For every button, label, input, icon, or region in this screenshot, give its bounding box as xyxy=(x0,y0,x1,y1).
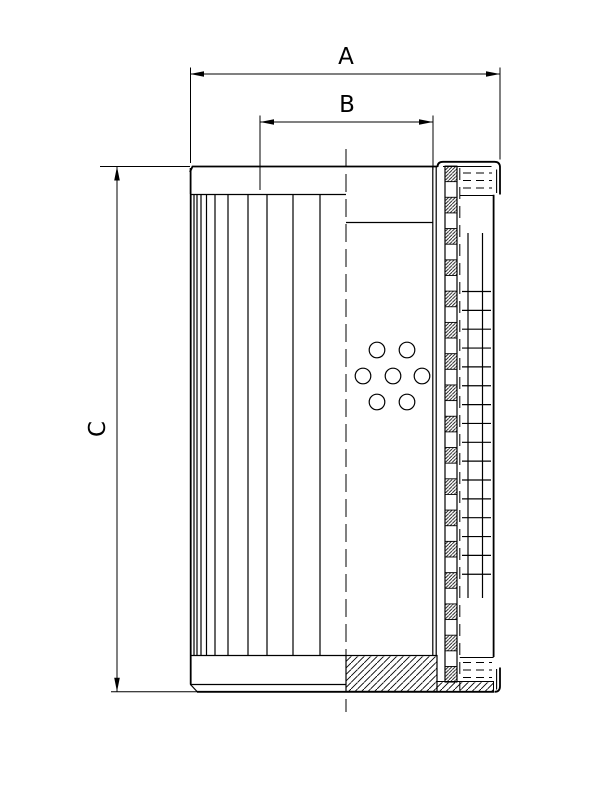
bypass-hole xyxy=(385,368,401,384)
core-tube-segment xyxy=(445,354,457,370)
shell-bottom-lip-outer xyxy=(495,668,501,692)
bypass-hole xyxy=(369,342,385,358)
drawing-page: A B C xyxy=(0,0,612,792)
core-tube-segment xyxy=(445,416,457,432)
core-tube-segment xyxy=(445,666,457,682)
dimension-arrowheads xyxy=(114,71,500,692)
dim-b-label: B xyxy=(339,92,355,118)
dimension-labels: A B C xyxy=(85,44,355,437)
core-tube-segment xyxy=(445,229,457,245)
core-tube-segment xyxy=(445,510,457,526)
arrow-c-bottom xyxy=(114,678,120,692)
arrow-b-left xyxy=(260,119,274,125)
dim-c-label: C xyxy=(85,421,111,437)
core-tube-segment xyxy=(445,541,457,557)
dim-a-label: A xyxy=(338,44,354,70)
filter-element-drawing: A B C xyxy=(0,0,612,792)
core-tube-segment xyxy=(445,260,457,276)
bottom-cap-section-hatch xyxy=(346,656,437,692)
bypass-hole-pattern xyxy=(355,342,430,410)
core-tube-segment xyxy=(445,322,457,338)
sectioned-parts xyxy=(346,656,494,692)
arrow-a-left xyxy=(190,71,204,77)
core-tube-segment xyxy=(445,448,457,464)
seal-thread-dashes xyxy=(463,173,492,678)
core-tube-segment xyxy=(445,635,457,651)
bypass-hole xyxy=(414,368,430,384)
pleat-lines xyxy=(194,195,320,655)
core-tube-segment xyxy=(445,385,457,401)
core-tube-segment xyxy=(445,604,457,620)
bypass-hole xyxy=(399,342,415,358)
bypass-hole xyxy=(399,394,415,410)
core-tube-segment xyxy=(445,573,457,589)
bottom-cap-chamfer xyxy=(191,685,198,692)
arrow-c-top xyxy=(114,167,120,181)
bypass-hole xyxy=(355,368,371,384)
arrow-b-right xyxy=(419,119,433,125)
arrow-a-right xyxy=(486,71,500,77)
shell-bottom-band-hatch xyxy=(437,682,494,692)
core-tube-segment xyxy=(445,291,457,307)
core-tube-segment xyxy=(445,197,457,213)
bypass-hole xyxy=(369,394,385,410)
dimension-lines xyxy=(100,68,500,692)
top-cap-top-edge xyxy=(190,167,438,173)
core-tube-segment xyxy=(445,166,457,182)
core-tube-segment xyxy=(445,479,457,495)
support-mesh xyxy=(462,233,491,598)
perforated-core-tube-section xyxy=(445,166,460,690)
